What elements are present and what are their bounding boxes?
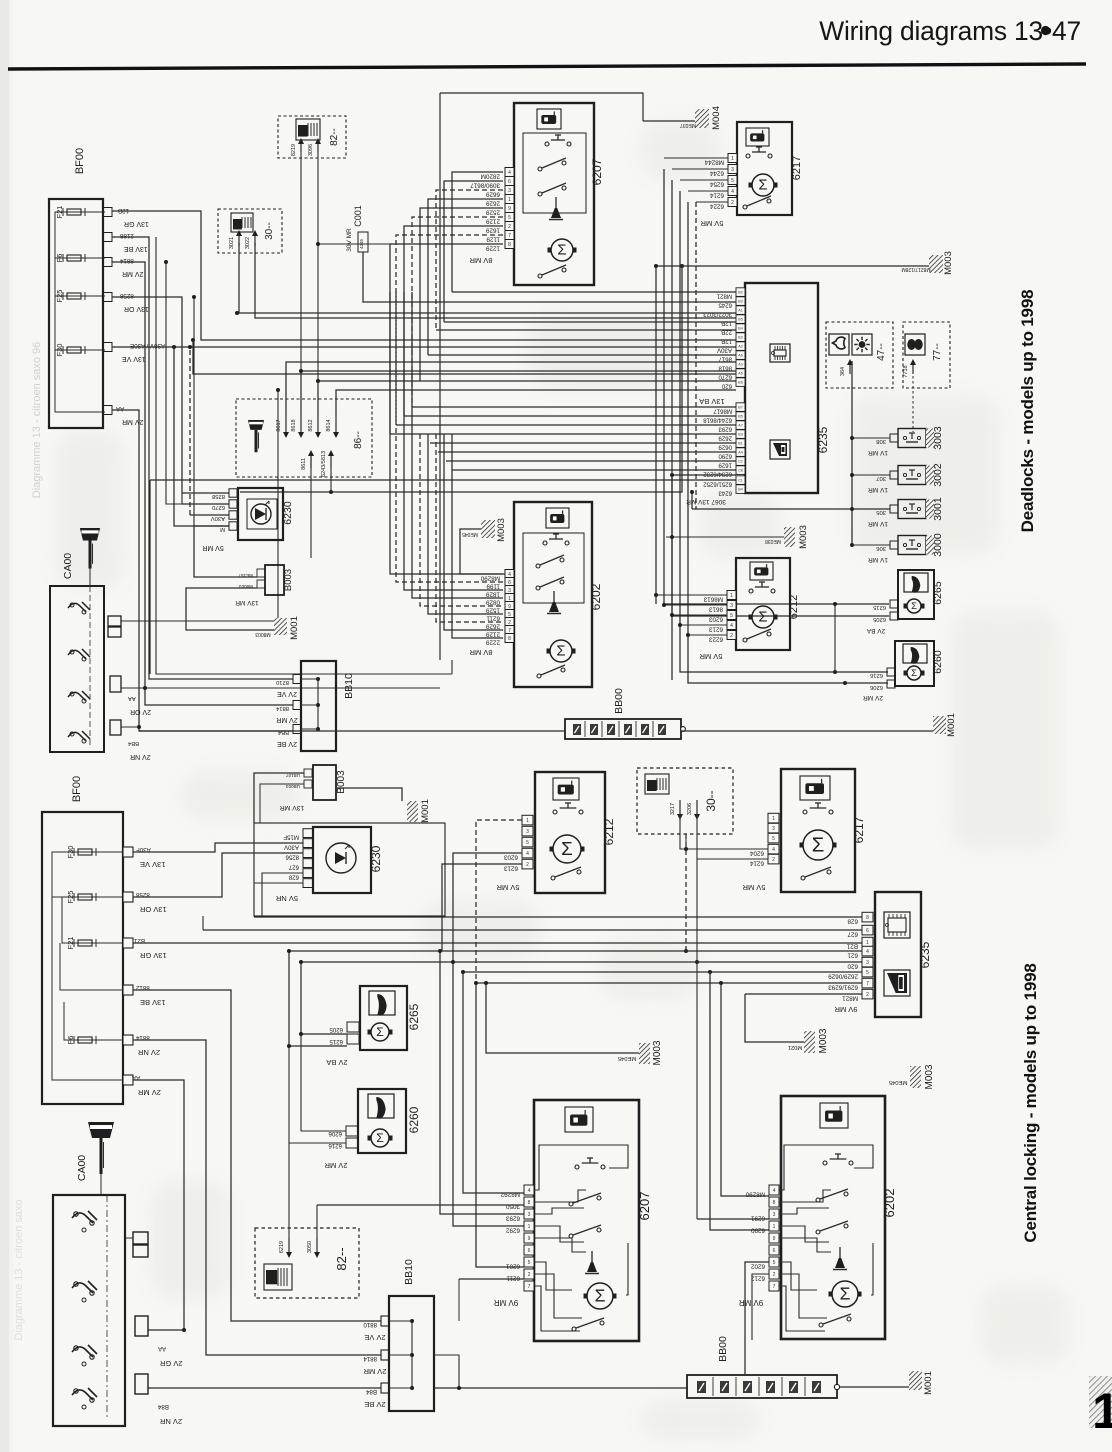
svg-text:7: 7 [866,981,869,987]
svg-text:Σ: Σ [557,243,566,259]
svg-text:1: 1 [866,940,869,946]
svg-text:628: 628 [847,918,858,925]
svg-text:1129: 1129 [486,236,500,243]
svg-text:C8: C8 [738,469,743,473]
svg-text:Σ: Σ [812,834,825,856]
svg-text:2: 2 [772,857,775,863]
svg-text:6293: 6293 [718,425,732,432]
svg-text:307: 307 [876,475,886,481]
svg-text:12B: 12B [721,337,732,344]
svg-text:B5: B5 [738,415,742,419]
svg-text:8256: 8256 [285,853,299,860]
svg-text:5: 5 [773,1260,776,1266]
svg-text:6291/6293: 6291/6293 [828,984,858,991]
svg-text:B5: B5 [738,318,742,322]
svg-text:AA: AA [115,405,124,412]
svg-text:3000: 3000 [932,533,944,557]
svg-text:B4: B4 [738,327,742,331]
svg-text:BF00: BF00 [71,776,83,802]
svg-text:9V MR: 9V MR [494,1298,519,1307]
svg-text:7: 7 [508,233,511,239]
svg-text:B003: B003 [336,770,347,794]
svg-text:12B: 12B [721,319,732,326]
svg-text:6234/6232: 6234/6232 [703,470,732,477]
svg-text:M8290: M8290 [745,1191,765,1198]
svg-text:6202: 6202 [750,1263,765,1270]
svg-text:6202: 6202 [589,583,603,610]
svg-text:Σ: Σ [376,1025,384,1039]
svg-text:BF00: BF00 [74,148,86,174]
svg-text:8611: 8611 [301,458,307,470]
svg-text:2V NR: 2V NR [130,753,151,760]
svg-text:82--: 82-- [329,128,340,146]
svg-text:6235: 6235 [918,941,932,968]
svg-text:Σ: Σ [758,178,767,194]
svg-text:3090/8617: 3090/8617 [470,182,500,189]
svg-text:6: 6 [866,928,869,934]
svg-text:M8613: M8613 [703,596,723,603]
svg-text:9: 9 [773,1236,776,1242]
svg-text:3: 3 [528,1212,531,1218]
svg-text:2: 2 [866,992,869,998]
svg-text:8258: 8258 [212,493,225,499]
svg-text:ME038: ME038 [765,538,781,544]
svg-text:5V NR: 5V NR [275,894,298,903]
svg-text:B7: B7 [738,406,742,410]
svg-text:M15F: M15F [283,833,299,840]
svg-text:1: 1 [528,1224,531,1230]
svg-text:2: 2 [731,200,734,206]
svg-text:2V OR: 2V OR [130,708,151,715]
svg-text:Σ: Σ [911,601,917,612]
svg-text:2: 2 [528,1272,531,1278]
svg-text:3: 3 [508,188,511,194]
svg-text:30--: 30-- [264,222,275,240]
svg-text:3206: 3206 [687,803,693,815]
svg-text:6212: 6212 [602,818,616,845]
svg-text:3003: 3003 [932,426,944,450]
svg-text:3050: 3050 [307,1241,313,1253]
svg-text:13V VE: 13V VE [122,355,146,362]
svg-text:2V VE: 2V VE [364,1333,385,1342]
svg-text:4: 4 [528,1188,531,1194]
svg-text:Diagramme 13 - citroen saxo: Diagramme 13 - citroen saxo [13,1199,25,1340]
svg-text:Σ: Σ [840,1283,851,1303]
svg-text:5: 5 [508,612,511,618]
svg-text:1: 1 [773,1224,776,1230]
svg-text:2V VE: 2V VE [277,690,297,697]
svg-text:1: 1 [730,593,733,599]
svg-text:B2: B2 [738,336,742,340]
svg-text:30V MR: 30V MR [346,228,353,252]
svg-text:6203: 6203 [708,616,723,623]
svg-text:364: 364 [840,367,846,376]
svg-text:M001: M001 [420,799,431,823]
svg-text:6211: 6211 [506,1275,520,1282]
svg-text:8613: 8613 [708,606,723,613]
svg-text:8V MR: 8V MR [469,256,493,265]
svg-text:305: 305 [876,509,886,515]
svg-text:6290: 6290 [750,1227,765,1234]
svg-text:8814: 8814 [119,257,133,264]
svg-text:6292: 6292 [505,1227,520,1234]
svg-text:9V MR: 9V MR [739,1298,764,1307]
svg-text:B84: B84 [366,1388,377,1395]
svg-text:82--: 82-- [334,1247,349,1270]
svg-text:CA00: CA00 [76,1155,88,1181]
svg-text:6219: 6219 [279,1241,285,1253]
svg-text:8814: 8814 [275,705,289,711]
svg-text:A4: A4 [738,451,742,455]
svg-text:2629: 2629 [485,200,500,207]
svg-text:1199: 1199 [486,583,500,590]
svg-text:2V BE: 2V BE [277,740,297,747]
svg-text:6207: 6207 [637,1192,652,1221]
svg-text:3217: 3217 [670,803,676,815]
svg-text:1: 1 [731,156,734,162]
svg-text:8810: 8810 [363,1321,377,1328]
svg-text:B84: B84 [157,1403,168,1410]
svg-text:A30V: A30V [283,843,299,850]
svg-text:2V MR: 2V MR [363,1367,387,1376]
svg-text:M8292: M8292 [500,1191,520,1198]
svg-text:6244: 6244 [709,170,724,177]
svg-text:6251/6252: 6251/6252 [703,480,732,487]
svg-text:Σ: Σ [376,1131,384,1145]
svg-text:M821: M821 [716,292,732,299]
svg-text:3022: 3022 [245,237,251,249]
svg-text:6216: 6216 [870,672,883,678]
svg-text:1V MR: 1V MR [868,556,888,563]
svg-text:M004: M004 [711,106,722,130]
svg-text:5V MR: 5V MR [699,652,723,661]
svg-text:8614: 8614 [326,419,332,431]
svg-text:2529: 2529 [485,209,500,216]
svg-text:1: 1 [772,816,775,822]
svg-text:AA: AA [157,1345,166,1352]
svg-text:6230: 6230 [282,501,294,525]
svg-text:M003: M003 [943,251,954,275]
svg-text:6291: 6291 [750,1215,765,1222]
svg-text:B1: B1 [738,442,742,446]
svg-text:6260: 6260 [407,1106,421,1133]
svg-text:Σ: Σ [595,1285,606,1305]
svg-text:620: 620 [721,382,732,389]
svg-text:9V MR: 9V MR [834,1005,858,1014]
svg-text:620: 620 [847,963,858,970]
svg-text:6202: 6202 [882,1189,897,1218]
svg-text:2V MR: 2V MR [863,694,883,701]
svg-text:8612: 8612 [308,419,314,431]
svg-text:8258: 8258 [119,292,133,299]
svg-text:A30V / A30E: A30V / A30E [130,342,165,349]
svg-text:ME045: ME045 [889,1079,907,1085]
svg-text:8: 8 [773,1200,776,1206]
svg-text:B3: B3 [738,433,742,437]
svg-text:BB00: BB00 [717,1336,729,1362]
svg-text:8V MR: 8V MR [469,648,493,657]
svg-text:2V MR: 2V MR [276,716,297,723]
svg-text:4245: 4245 [359,238,364,249]
svg-text:C1: C1 [738,479,743,483]
svg-text:M821: M821 [842,995,858,1002]
svg-text:6217: 6217 [852,816,866,843]
svg-text:8: 8 [866,915,869,921]
svg-text:8210: 8210 [276,679,289,685]
svg-text:2V MR: 2V MR [122,270,143,277]
svg-text:3001: 3001 [932,497,944,521]
svg-text:0829: 0829 [485,599,500,606]
svg-text:7: 7 [508,628,511,634]
svg-text:2: 2 [730,633,733,639]
svg-text:A5: A5 [738,372,742,376]
svg-text:B21: B21 [846,943,858,950]
svg-text:6224: 6224 [709,203,724,210]
svg-text:6: 6 [773,1248,776,1254]
svg-text:4: 4 [773,1188,776,1194]
svg-text:2: 2 [508,620,511,626]
svg-text:6260: 6260 [932,650,944,674]
svg-text:M8290: M8290 [480,575,500,582]
svg-text:6215: 6215 [873,604,886,610]
svg-text:BB4: BB4 [127,740,139,746]
svg-text:1V MR: 1V MR [868,520,888,527]
svg-text:1629: 1629 [485,227,500,234]
svg-text:3: 3 [508,588,511,594]
svg-text:3050: 3050 [505,1203,520,1210]
svg-text:8618: 8618 [291,419,297,431]
svg-text:AA: AA [128,695,136,701]
svg-text:A2: A2 [738,345,742,349]
svg-text:627: 627 [847,931,858,938]
svg-text:6245: 6245 [718,301,732,308]
svg-text:1: 1 [1092,1383,1112,1439]
svg-text:8219: 8219 [291,144,297,156]
svg-text:6217: 6217 [791,156,803,180]
svg-text:M: M [220,526,225,532]
svg-text:A3: A3 [738,363,742,367]
svg-text:6215: 6215 [329,1038,343,1045]
svg-text:Σ: Σ [911,668,917,679]
svg-text:628: 628 [288,873,299,880]
svg-text:M8617: M8617 [713,407,732,414]
svg-text:M8003: M8003 [255,631,271,637]
svg-text:3: 3 [772,826,775,832]
svg-text:2V NR: 2V NR [137,1048,160,1057]
svg-text:5V MR: 5V MR [202,544,223,551]
svg-text:8: 8 [508,636,511,642]
svg-text:2V MR: 2V MR [137,1088,161,1097]
svg-text:6207: 6207 [590,158,604,185]
svg-text:M8244: M8244 [704,159,724,166]
svg-text:627: 627 [288,863,299,870]
svg-text:A30V: A30V [211,515,225,521]
svg-text:6270: 6270 [212,504,225,510]
svg-text:4: 4 [508,572,511,578]
svg-text:2V BA: 2V BA [866,627,885,634]
svg-text:6211: 6211 [486,615,500,622]
svg-text:6290: 6290 [718,452,732,459]
svg-text:M003: M003 [818,1028,829,1053]
svg-text:1529: 1529 [485,607,500,614]
svg-text:C2: C2 [738,460,743,464]
svg-text:1: 1 [508,197,511,203]
svg-text:5: 5 [526,840,529,846]
svg-text:5: 5 [731,178,734,184]
svg-text:30--: 30-- [704,790,718,811]
svg-text:Σ: Σ [556,644,565,660]
svg-text:6212: 6212 [788,595,800,619]
svg-text:6629: 6629 [485,191,500,198]
svg-text:9: 9 [508,206,511,212]
svg-text:8814: 8814 [363,1355,377,1362]
svg-text:A1: A1 [738,309,742,313]
svg-text:M003: M003 [924,1064,935,1089]
svg-text:2129: 2129 [485,631,500,638]
svg-text:2V BA: 2V BA [326,1058,347,1067]
svg-text:M003: M003 [652,1040,663,1065]
svg-text:3: 3 [773,1212,776,1218]
svg-text:4: 4 [866,949,869,955]
svg-text:4: 4 [731,189,734,195]
svg-text:6214: 6214 [709,192,724,199]
svg-text:6203: 6203 [503,853,518,860]
svg-text:13V MR: 13V MR [235,599,259,606]
svg-text:Central locking - models up to: Central locking - models up to 1998 [1021,963,1040,1242]
svg-text:CA00: CA00 [62,553,74,579]
svg-text:1V MR: 1V MR [868,486,888,493]
svg-text:1V MR: 1V MR [868,449,888,456]
svg-text:2: 2 [773,1272,776,1278]
svg-text:M001: M001 [289,616,300,640]
svg-text:1229: 1229 [485,245,500,252]
svg-text:13V BE: 13V BE [140,998,165,1007]
svg-text:3: 3 [730,603,733,609]
svg-text:47--: 47-- [876,343,887,361]
svg-text:6213: 6213 [708,626,723,633]
svg-text:6243: 6243 [718,489,732,496]
svg-text:2629: 2629 [718,434,732,441]
svg-text:ME045: ME045 [462,531,478,537]
svg-text:Deadlocks - models up to 1998: Deadlocks - models up to 1998 [1018,290,1037,533]
svg-text:6270: 6270 [718,373,732,380]
svg-text:M021: M021 [788,1044,803,1050]
svg-text:B6: B6 [738,381,742,385]
svg-text:6205: 6205 [873,616,886,622]
svg-text:8: 8 [508,242,511,248]
svg-text:6235: 6235 [816,426,830,453]
svg-text:1629: 1629 [718,461,732,468]
svg-text:3: 3 [866,960,869,966]
svg-text:1: 1 [508,596,511,602]
svg-text:2229: 2229 [485,639,500,646]
svg-text:M8217/128M: M8217/128M [901,266,930,272]
svg-text:8617: 8617 [718,355,732,362]
svg-text:5: 5 [866,970,869,976]
svg-text:BB10: BB10 [403,1259,415,1285]
svg-text:2188: 2188 [119,232,133,239]
svg-text:5: 5 [528,1260,531,1266]
svg-text:4: 4 [730,623,733,629]
svg-text:3021: 3021 [229,237,235,249]
svg-text:B2: B2 [738,291,742,295]
svg-text:2129: 2129 [485,218,500,225]
svg-text:M001: M001 [946,713,957,737]
svg-text:3096: 3096 [308,144,314,156]
svg-text:6265: 6265 [407,1003,421,1030]
svg-text:6230: 6230 [369,845,383,872]
svg-text:2629/0629: 2629/0629 [828,973,858,980]
svg-text:22B: 22B [721,328,732,335]
svg-text:9: 9 [528,1236,531,1242]
svg-text:621: 621 [847,952,858,959]
svg-text:2820M: 2820M [481,173,500,180]
svg-text:BB10: BB10 [343,673,355,699]
svg-text:5: 5 [772,836,775,842]
svg-text:6265: 6265 [932,581,944,605]
svg-text:M003: M003 [496,518,507,542]
svg-text:4: 4 [508,170,511,176]
svg-text:6206: 6206 [870,684,883,690]
svg-text:8618: 8618 [718,364,732,371]
svg-text:13V GR: 13V GR [124,220,149,227]
svg-text:UB107: UB107 [286,773,300,778]
svg-text:13V BE: 13V BE [124,245,148,252]
svg-text:2: 2 [508,224,511,230]
svg-text:8617: 8617 [276,419,282,431]
svg-text:C001: C001 [353,205,363,227]
svg-text:6204: 6204 [749,849,764,856]
svg-text:8: 8 [528,1200,531,1206]
svg-text:13V GR: 13V GR [139,951,166,960]
svg-text:6243/5813: 6243/5813 [321,451,327,477]
svg-text:BB00: BB00 [613,688,625,714]
svg-text:0629: 0629 [718,443,732,450]
svg-text:Diagramme 13 - citroen saxo 96: Diagramme 13 - citroen saxo 96 [31,342,43,499]
svg-text:2V NR: 2V NR [159,1417,182,1426]
svg-text:6293: 6293 [505,1215,520,1222]
svg-text:9: 9 [508,604,511,610]
svg-text:A30V: A30V [716,346,732,353]
svg-text:2V GR: 2V GR [159,1359,182,1368]
svg-text:13V VE: 13V VE [140,860,165,869]
svg-text:86--: 86-- [353,431,364,449]
svg-text:4: 4 [526,851,529,857]
svg-text:M001: M001 [923,1371,934,1395]
svg-text:2629: 2629 [485,623,500,630]
svg-text:UB003: UB003 [286,784,300,789]
svg-text:2V MR: 2V MR [324,1161,348,1170]
svg-text:6254: 6254 [709,181,724,188]
svg-text:7718: 7718 [903,365,909,377]
svg-text:6: 6 [508,179,511,185]
svg-text:7: 7 [528,1284,531,1290]
svg-text:1: 1 [526,818,529,824]
svg-text:BB4: BB4 [277,729,289,735]
svg-text:2V MR: 2V MR [122,418,143,425]
svg-text:13V MR: 13V MR [280,804,305,811]
svg-text:B3: B3 [738,300,742,304]
svg-text:2: 2 [526,862,529,868]
svg-text:4: 4 [772,847,775,853]
svg-text:A7: A7 [738,424,742,428]
svg-text:B4: B4 [738,488,742,492]
svg-text:3002: 3002 [932,463,944,487]
svg-text:5: 5 [730,613,733,619]
svg-text:6223: 6223 [708,636,723,643]
svg-text:Σ: Σ [561,839,573,860]
svg-text:77--: 77-- [932,343,943,361]
